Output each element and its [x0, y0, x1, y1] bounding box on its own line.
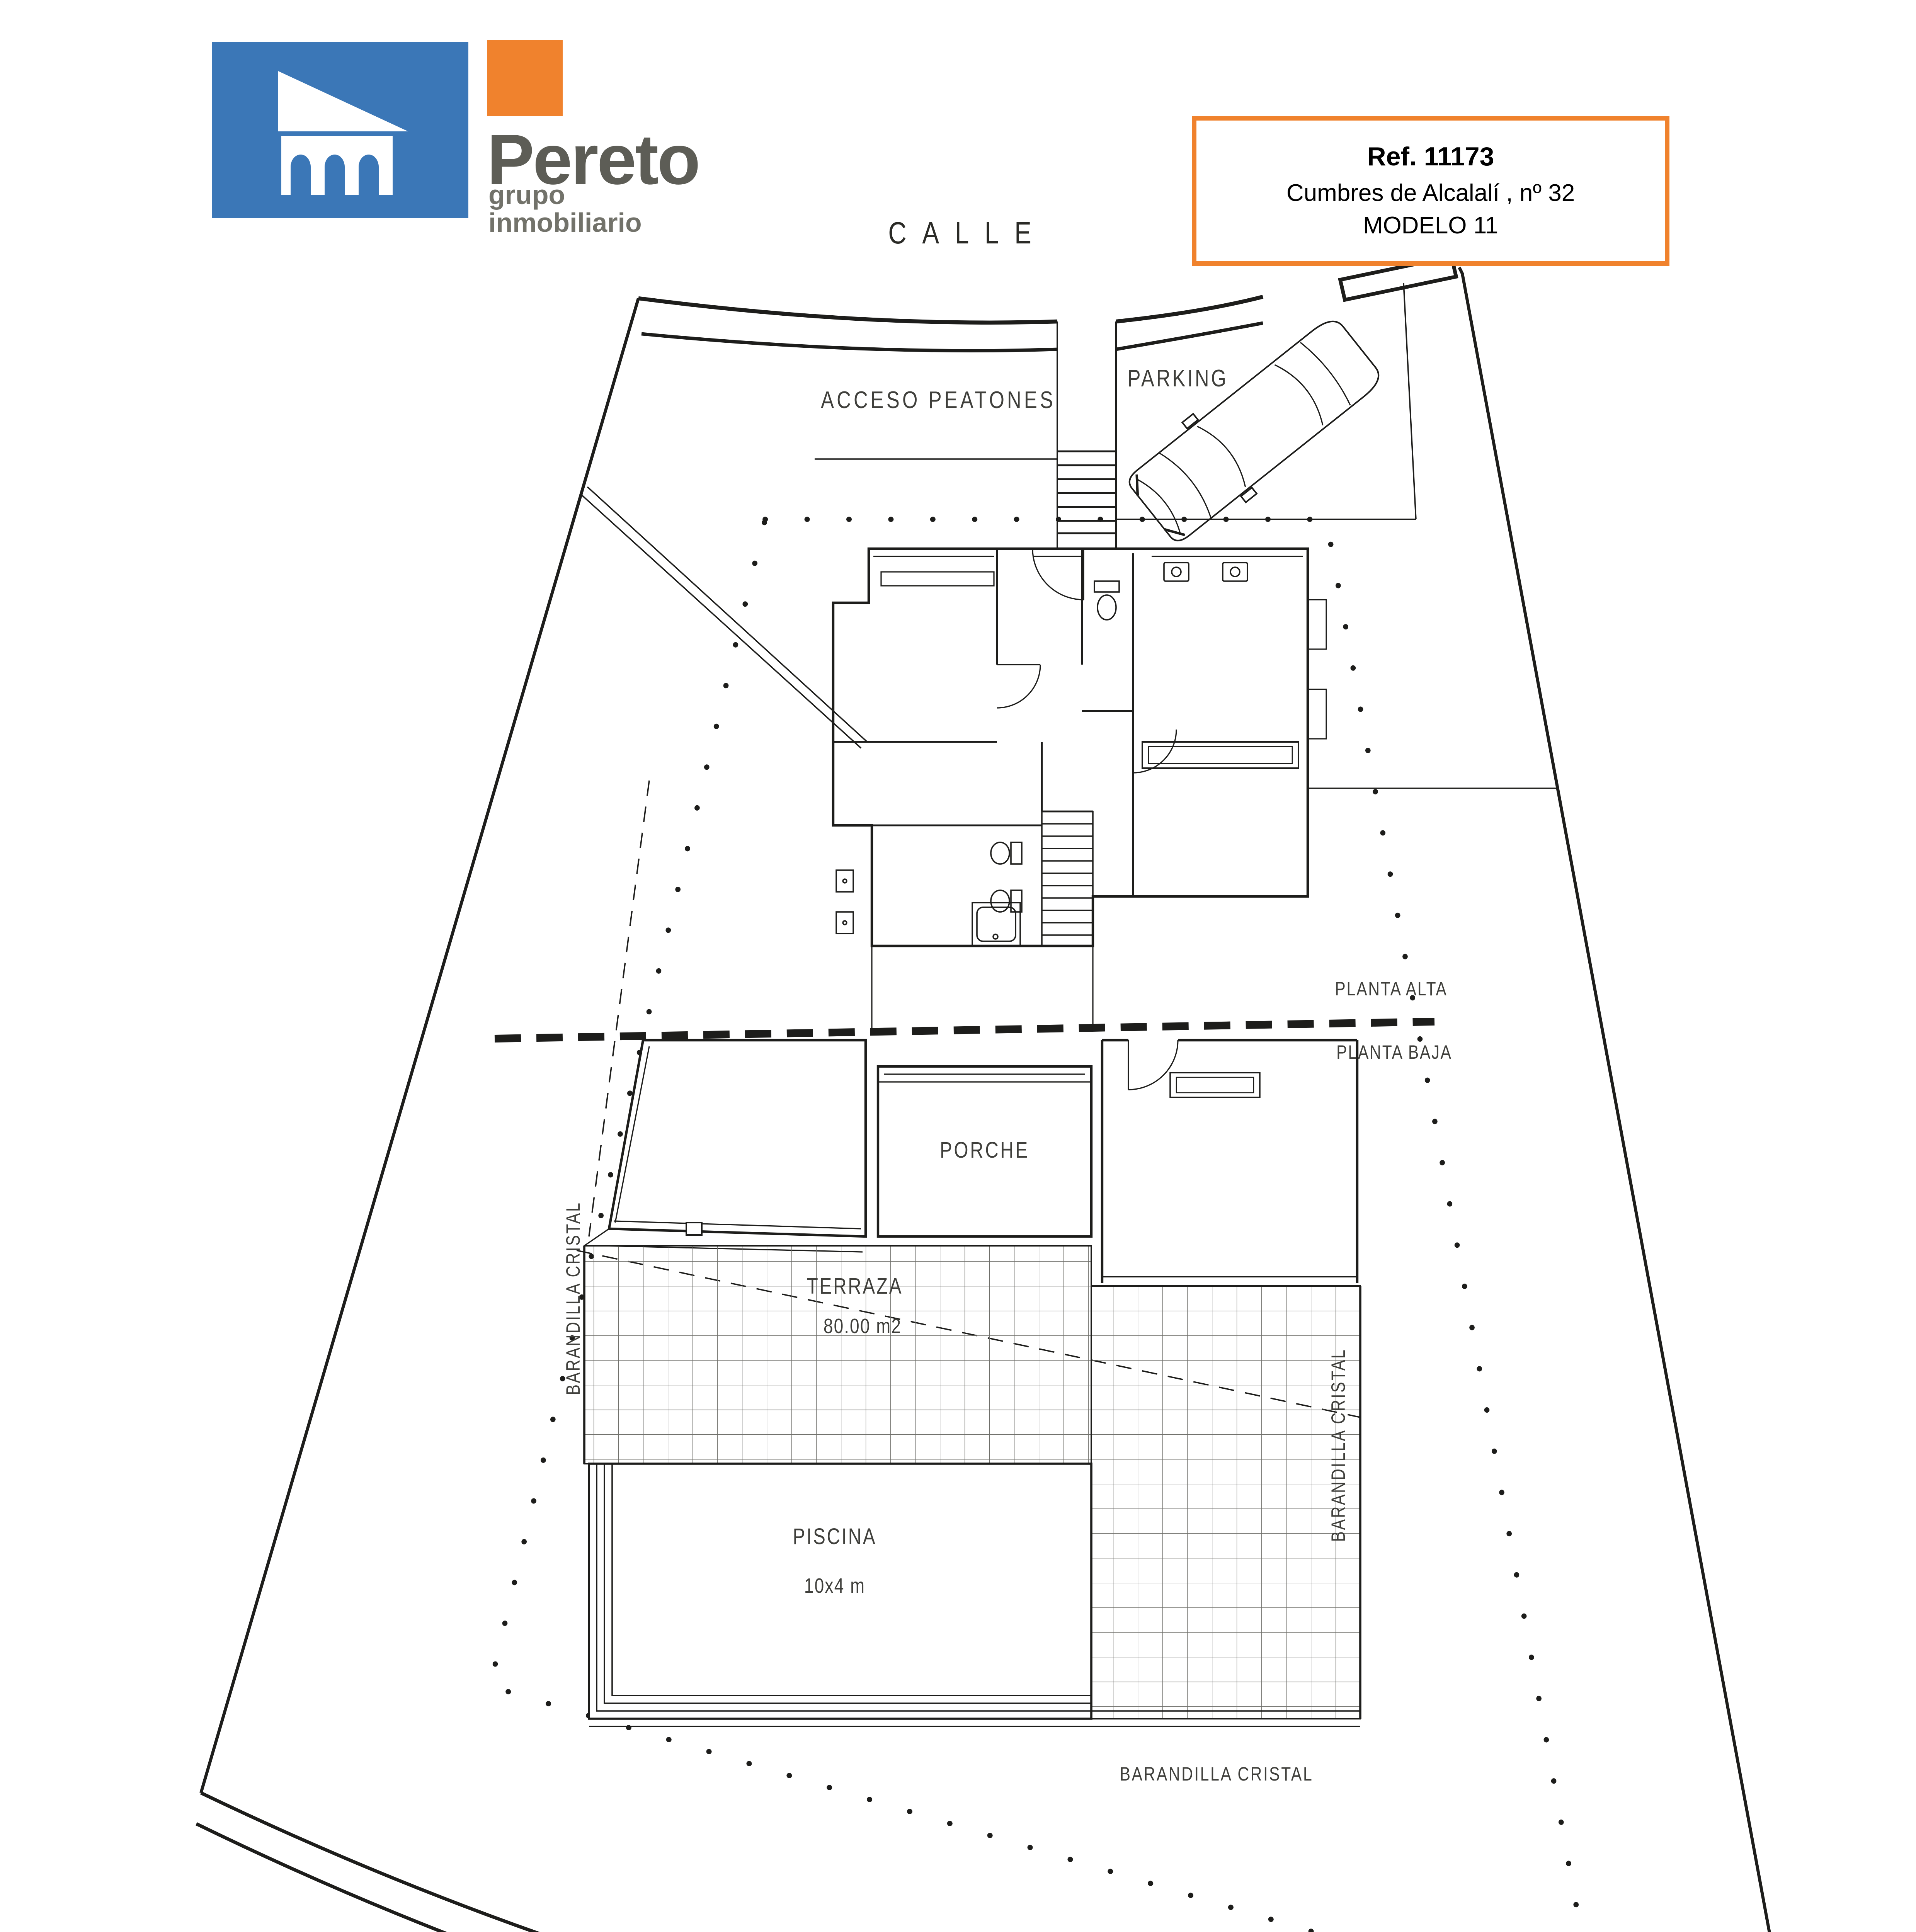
- car-icon: [1120, 307, 1391, 553]
- reference-box: Ref. 11173 Cumbres de Alcalalí , nº 32 M…: [1192, 116, 1669, 266]
- door-arc: [997, 549, 1176, 773]
- terrace-label: TERRAZA: [807, 1275, 903, 1300]
- toilet-icon: [991, 842, 1022, 912]
- stairs-icon: [1057, 451, 1116, 533]
- parking-label: PARKING: [1128, 366, 1229, 394]
- logo-orange-square: [487, 40, 563, 116]
- upper-floor-plan: [833, 549, 1558, 1029]
- glass-railing-label-right: BARANDILLA CRISTAL: [1328, 1349, 1349, 1542]
- glass-railing-label-left: BARANDILLA CRISTAL: [563, 1202, 584, 1395]
- upper-floor-label: PLANTA ALTA: [1335, 978, 1447, 1000]
- ground-floor-label: PLANTA BAJA: [1336, 1042, 1452, 1063]
- parking-area: [1116, 283, 1416, 552]
- street-curb-outer: [201, 1793, 1801, 1932]
- bathtub-icon: [972, 903, 1020, 946]
- pool-label: PISCINA: [793, 1526, 877, 1550]
- interior-stairs-icon: [1042, 811, 1093, 946]
- street-curb-inner: [196, 1824, 1805, 1932]
- glass-railing-label-bottom: BARANDILLA CRISTAL: [1120, 1764, 1314, 1785]
- floor-divider-dashed-line: [495, 1022, 1434, 1039]
- brand-tagline: grupo inmobiliario: [488, 182, 642, 236]
- terrace-area-label: 80.00 m2: [824, 1315, 902, 1338]
- pool-size-label: 10x4 m: [804, 1574, 866, 1597]
- site-plan-page: Pereto grupo inmobiliario Ref. 11173 Cum…: [0, 0, 1916, 1932]
- reference-model: MODELO 11: [1196, 211, 1665, 244]
- logo-graphic: [0, 0, 572, 232]
- retaining-wall: [581, 487, 867, 748]
- pedestrian-access-label: ACCESO PEATONES: [821, 388, 1056, 416]
- living-wing: [584, 1040, 866, 1252]
- sink-icon: [1164, 563, 1247, 581]
- site-plan-drawing: [0, 0, 1916, 1932]
- right-wing: [1102, 1040, 1357, 1286]
- reference-address: Cumbres de Alcalalí , nº 32: [1196, 177, 1665, 211]
- street-label-top: CALLE: [888, 217, 1047, 253]
- porch-label: PORCHE: [940, 1139, 1029, 1164]
- cabinet-icon: [836, 870, 853, 934]
- setback-dotted-line: [490, 519, 1586, 1932]
- toilet-icon: [1094, 581, 1119, 620]
- reference-number: Ref. 11173: [1196, 138, 1665, 177]
- logo: Pereto grupo inmobiliario: [0, 0, 572, 240]
